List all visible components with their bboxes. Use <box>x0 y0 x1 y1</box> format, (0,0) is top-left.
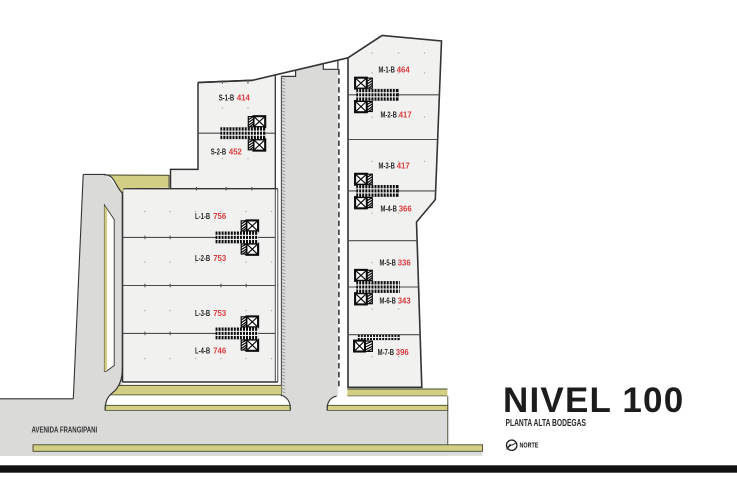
svg-text:756: 756 <box>213 212 227 221</box>
svg-text:M-7-B: M-7-B <box>378 349 394 357</box>
svg-text:L-4-B: L-4-B <box>195 348 210 356</box>
svg-text:M-1-B: M-1-B <box>379 67 395 75</box>
svg-text:336: 336 <box>398 258 412 267</box>
svg-text:343: 343 <box>398 297 412 306</box>
svg-text:753: 753 <box>213 309 227 318</box>
svg-text:M-3-B: M-3-B <box>379 163 395 171</box>
svg-text:S-1-B: S-1-B <box>219 95 234 103</box>
svg-text:464: 464 <box>397 65 411 74</box>
svg-text:PLANTA ALTA BODEGAS: PLANTA ALTA BODEGAS <box>506 416 587 428</box>
svg-text:746: 746 <box>213 346 227 355</box>
svg-text:L-1-B: L-1-B <box>195 213 210 221</box>
svg-text:AVENIDA FRANGIPANI: AVENIDA FRANGIPANI <box>32 426 98 435</box>
svg-text:417: 417 <box>399 110 413 119</box>
svg-text:NORTE: NORTE <box>520 442 539 450</box>
svg-text:L-2-B: L-2-B <box>195 255 210 263</box>
svg-text:753: 753 <box>213 254 227 263</box>
svg-text:M-4-B: M-4-B <box>381 206 397 214</box>
svg-text:417: 417 <box>397 161 411 170</box>
svg-text:396: 396 <box>396 348 410 357</box>
svg-text:M-6-B: M-6-B <box>380 298 396 306</box>
svg-text:414: 414 <box>237 93 251 102</box>
svg-text:S-2-B: S-2-B <box>211 149 226 157</box>
svg-text:M-2-B: M-2-B <box>381 112 397 120</box>
svg-text:L-3-B: L-3-B <box>195 310 210 318</box>
svg-text:NIVEL 100: NIVEL 100 <box>503 381 684 420</box>
svg-text:366: 366 <box>399 204 413 213</box>
svg-text:M-5-B: M-5-B <box>380 260 396 268</box>
svg-text:452: 452 <box>229 147 243 156</box>
